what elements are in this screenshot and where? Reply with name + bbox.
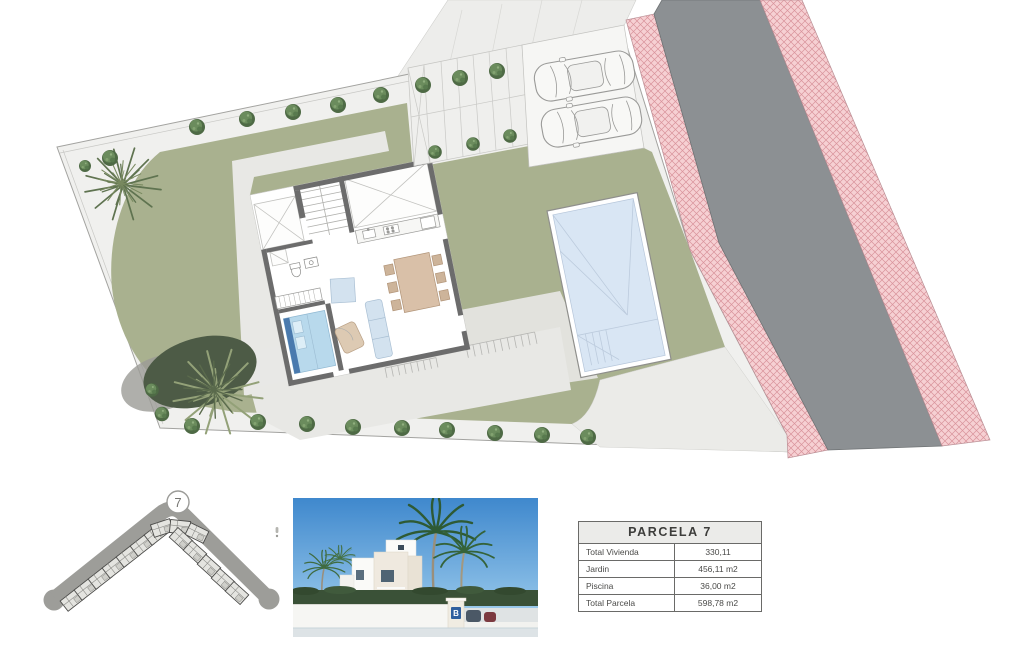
- tiny-marker: [276, 527, 279, 537]
- lot-number: 7: [174, 495, 181, 510]
- gate-pillar: B: [446, 598, 466, 628]
- row-value: 36,00 m2: [675, 581, 761, 591]
- table-row: Jardin 456,11 m2: [579, 561, 761, 578]
- site-plan-page: 7: [0, 0, 1024, 648]
- parcel-table-title: PARCELA 7: [579, 522, 761, 544]
- lot-number-badge: 7: [167, 491, 189, 513]
- parcel-plan: [57, 0, 990, 458]
- locator-map: 7: [44, 491, 280, 611]
- row-label: Jardin: [579, 561, 675, 577]
- row-value: 330,11: [675, 547, 761, 557]
- parcel-table: PARCELA 7 Total Vivienda 330,11 Jardin 4…: [578, 521, 762, 612]
- table-row: Total Vivienda 330,11: [579, 544, 761, 561]
- site-plan-drawing: 7: [0, 0, 1024, 648]
- row-label: Piscina: [579, 578, 675, 594]
- row-value: 598,78 m2: [675, 598, 761, 608]
- row-value: 456,11 m2: [675, 564, 761, 574]
- hedge: [291, 586, 538, 606]
- car-red: [484, 612, 496, 622]
- row-label: Total Vivienda: [579, 544, 675, 560]
- photo-ground: [293, 628, 538, 637]
- brand-logo-letter: B: [453, 609, 459, 618]
- row-label: Total Parcela: [579, 595, 675, 611]
- table-row: Piscina 36,00 m2: [579, 578, 761, 595]
- car-blue: [466, 610, 481, 622]
- villa-render-photo: B: [291, 498, 538, 637]
- table-row: Total Parcela 598,78 m2: [579, 595, 761, 611]
- house-floorplan: [250, 158, 470, 386]
- front-wall: [293, 604, 463, 628]
- driveway: [522, 25, 645, 167]
